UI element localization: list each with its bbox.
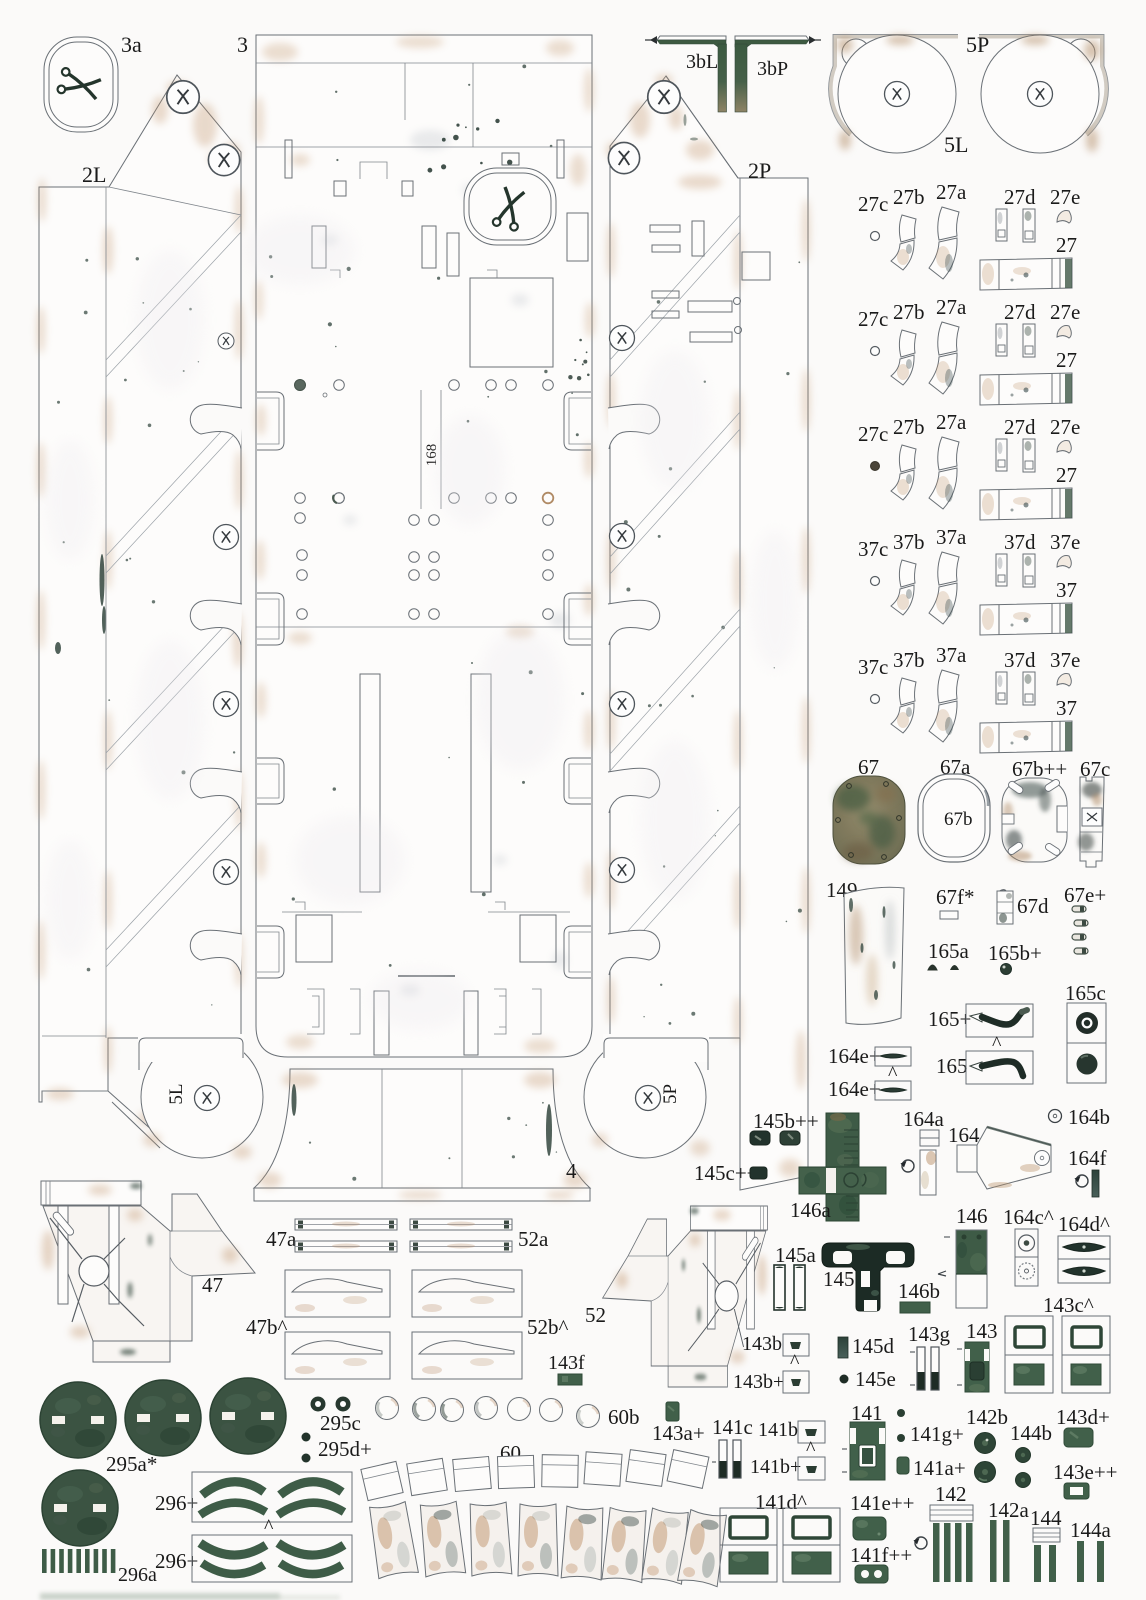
svg-text:142a: 142a [988,1498,1030,1522]
svg-text:27b: 27b [893,300,925,324]
svg-text:143c^: 143c^ [1043,1293,1094,1317]
svg-text:142: 142 [935,1482,967,1506]
svg-text:27a: 27a [936,295,967,319]
svg-text:143: 143 [966,1319,998,1343]
svg-text:27d: 27d [1004,300,1036,324]
svg-text:145: 145 [823,1267,855,1291]
svg-text:37d: 37d [1004,530,1036,554]
svg-text:47b^: 47b^ [246,1315,288,1339]
svg-text:164c^: 164c^ [1003,1205,1054,1229]
svg-text:295d+: 295d+ [318,1437,372,1461]
svg-text:37c: 37c [858,537,888,561]
svg-text:27e: 27e [1050,185,1080,209]
svg-text:141: 141 [851,1401,883,1425]
svg-text:144: 144 [1030,1506,1062,1530]
svg-text:37a: 37a [936,643,967,667]
svg-text:146b: 146b [898,1279,940,1303]
svg-text:67f*: 67f* [936,885,975,909]
svg-text:141b+: 141b+ [750,1456,801,1478]
svg-text:52: 52 [585,1303,606,1327]
svg-text:146: 146 [956,1204,988,1228]
svg-text:141d^: 141d^ [755,1490,807,1514]
svg-text:67e+: 67e+ [1064,883,1106,907]
svg-text:143e++: 143e++ [1053,1460,1118,1484]
svg-text:3: 3 [237,32,248,57]
svg-text:67b++: 67b++ [1012,757,1067,781]
svg-text:164a: 164a [903,1107,945,1131]
svg-text:296a: 296a [118,1564,157,1586]
svg-text:143b: 143b [742,1333,782,1355]
svg-text:164e+: 164e+ [828,1044,881,1068]
svg-text:145b++: 145b++ [753,1109,819,1133]
svg-text:141a+: 141a+ [913,1456,966,1480]
svg-text:145e: 145e [855,1367,896,1391]
svg-text:^: ^ [790,1351,800,1373]
svg-text:37e: 37e [1050,648,1080,672]
svg-text:141g+: 141g+ [910,1422,964,1446]
svg-text:141f++: 141f++ [850,1543,912,1567]
svg-text:146a: 146a [790,1198,832,1222]
svg-text:27a: 27a [936,410,967,434]
svg-text:60b: 60b [608,1405,640,1429]
svg-text:143b+: 143b+ [733,1371,784,1393]
svg-text:145a: 145a [775,1243,817,1267]
svg-text:5P: 5P [966,32,989,57]
svg-text:27c: 27c [858,192,888,216]
svg-text:295a*: 295a* [106,1452,157,1476]
svg-text:27c: 27c [858,422,888,446]
svg-text:164f: 164f [1068,1146,1107,1170]
svg-text:27b: 27b [893,185,925,209]
svg-text:27a: 27a [936,180,967,204]
svg-text:164b: 164b [1068,1105,1110,1129]
svg-text:165b+: 165b+ [988,941,1042,965]
svg-text:37a: 37a [936,525,967,549]
svg-text:165: 165 [936,1054,968,1078]
svg-text:164d^: 164d^ [1058,1212,1110,1236]
svg-text:164e+: 164e+ [828,1077,881,1101]
svg-text:37: 37 [1056,696,1077,720]
svg-text:^: ^ [992,1033,1002,1055]
svg-text:2P: 2P [748,158,771,183]
svg-text:47a: 47a [266,1227,297,1251]
svg-text:27d: 27d [1004,415,1036,439]
svg-text:27d: 27d [1004,185,1036,209]
svg-text:144a: 144a [1070,1518,1112,1542]
svg-text:37e: 37e [1050,530,1080,554]
svg-text:27: 27 [1056,348,1077,372]
svg-text:^: ^ [888,1063,898,1085]
svg-text:165a: 165a [928,939,970,963]
svg-text:165+: 165+ [928,1007,971,1031]
svg-text:143g: 143g [908,1322,951,1346]
svg-text:67: 67 [858,755,879,779]
svg-text:142b: 142b [966,1405,1008,1429]
svg-text:5L: 5L [166,1083,187,1104]
svg-text:37c: 37c [858,655,888,679]
svg-text:27c: 27c [858,307,888,331]
svg-text:143f: 143f [548,1352,585,1374]
svg-text:3bP: 3bP [757,58,788,80]
svg-text:141e++: 141e++ [850,1491,915,1515]
svg-text:4: 4 [566,1159,577,1183]
svg-text:67d: 67d [1017,894,1049,918]
svg-text:5L: 5L [944,132,968,157]
svg-text:37b: 37b [893,648,925,672]
svg-text:37: 37 [1056,578,1077,602]
svg-text:295c: 295c [320,1411,361,1435]
svg-text:52b^: 52b^ [527,1315,569,1339]
svg-text:27e: 27e [1050,415,1080,439]
svg-text:27: 27 [1056,233,1077,257]
svg-text:5P: 5P [660,1084,681,1104]
svg-text:145d: 145d [852,1334,895,1358]
svg-text:3bL: 3bL [686,51,718,73]
svg-text:145c++: 145c++ [694,1161,759,1185]
svg-text:2L: 2L [82,162,106,187]
svg-text:37b: 37b [893,530,925,554]
svg-text:141b: 141b [758,1419,798,1441]
svg-text:144b: 144b [1010,1421,1052,1445]
svg-text:165c: 165c [1065,981,1106,1005]
svg-text:143a+: 143a+ [652,1421,705,1445]
svg-text:27b: 27b [893,415,925,439]
svg-text:164: 164 [948,1123,980,1147]
svg-text:27e: 27e [1050,300,1080,324]
svg-text:37d: 37d [1004,648,1036,672]
svg-text:67b: 67b [944,809,973,830]
svg-text:47: 47 [202,1273,223,1297]
svg-text:52a: 52a [518,1227,549,1251]
svg-text:27: 27 [1056,463,1077,487]
svg-text:141c: 141c [712,1415,753,1439]
svg-text:143d+: 143d+ [1056,1405,1110,1429]
svg-text:3a: 3a [121,32,142,57]
